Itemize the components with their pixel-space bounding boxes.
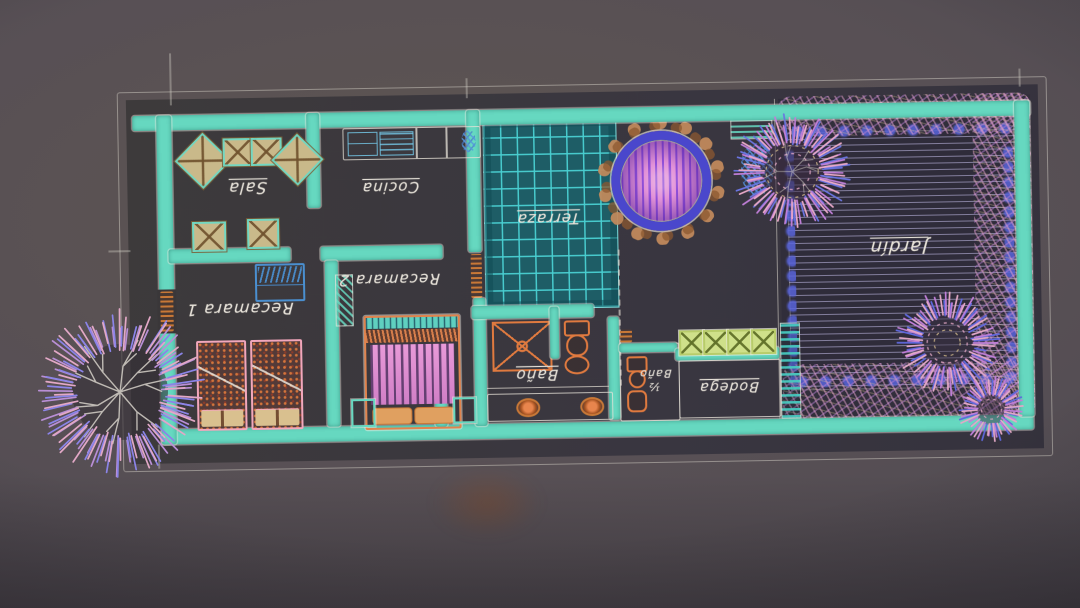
door-half-bath [620, 329, 632, 342]
tick-2 [465, 78, 467, 98]
planter-plant-1 [516, 398, 540, 417]
sala-seat-2 [223, 138, 253, 167]
bed-1-pillow [201, 409, 243, 427]
sala-table-2 [247, 219, 280, 250]
label-terraza: Terraza [516, 209, 580, 228]
nightstand-left [351, 399, 375, 427]
dresser-zigzag [258, 266, 302, 282]
bed-double-pillow-right [414, 406, 454, 424]
label-bano: Baño [515, 366, 559, 385]
label-bodega: Bodega [698, 378, 759, 395]
exterior-tree [40, 312, 200, 472]
bed-2-pillow [255, 408, 299, 426]
wall-bano-top [471, 304, 593, 319]
wall-half-bath-top [619, 343, 677, 353]
label-half-bano-text: Baño [639, 367, 672, 381]
kitchen-counter [342, 126, 481, 160]
wall-bano-divider [549, 307, 559, 359]
wall-sala-recamara1 [168, 247, 290, 263]
storage-box-2 [703, 330, 728, 355]
chalkboard-photo: { "scene": { "description": "Hand-drawn … [0, 0, 1080, 608]
dresser-shelf-line [257, 284, 303, 286]
nightstand-right [453, 397, 476, 423]
counter-divider-2 [445, 128, 447, 158]
bed-double-pillow-left [372, 407, 412, 425]
bed-double-band [366, 328, 458, 343]
dresser [255, 263, 306, 302]
tick-3 [1018, 69, 1020, 87]
half-bath-sink [627, 390, 647, 412]
planter-strip [487, 392, 613, 422]
bed-single-2 [250, 339, 304, 430]
planter-plant-2 [580, 397, 604, 416]
counter-cabinet [347, 132, 377, 157]
counter-plant-icon [461, 130, 475, 152]
storage-box-1 [679, 330, 704, 355]
storage-box-4 [751, 329, 776, 354]
bed-double [364, 314, 462, 430]
bed-double-headboard [366, 316, 458, 329]
storage-box-3 [727, 329, 752, 354]
label-half-bano: ½ Baño [638, 367, 672, 394]
shower [492, 321, 553, 372]
floor-plan: Sala Cocina Terraza Jardín Recamara 1 Re… [126, 84, 1044, 464]
label-half-bano-fraction: ½ [638, 380, 671, 394]
counter-divider-1 [415, 128, 417, 158]
label-cocina: Cocina [361, 178, 420, 197]
label-jardin: Jardín [869, 236, 929, 258]
label-recamara2: Recamara 2 [338, 270, 441, 290]
garden-bush-small [959, 377, 1024, 442]
bed-double-blanket [370, 343, 455, 404]
bed-single-1 [196, 340, 248, 431]
chalk-smudge [432, 468, 542, 538]
toilet-bowl [566, 334, 588, 356]
tick-1 [169, 53, 171, 105]
door-terraza [471, 254, 483, 298]
label-sala: Sala [227, 178, 267, 198]
wall-cocina-recamara2 [320, 245, 442, 261]
counter-drawers [379, 131, 413, 156]
stairs-strip [780, 322, 802, 418]
garden-tree [736, 116, 848, 228]
label-recamara1: Recamara 1 [185, 299, 294, 320]
sala-table-1 [192, 221, 227, 252]
